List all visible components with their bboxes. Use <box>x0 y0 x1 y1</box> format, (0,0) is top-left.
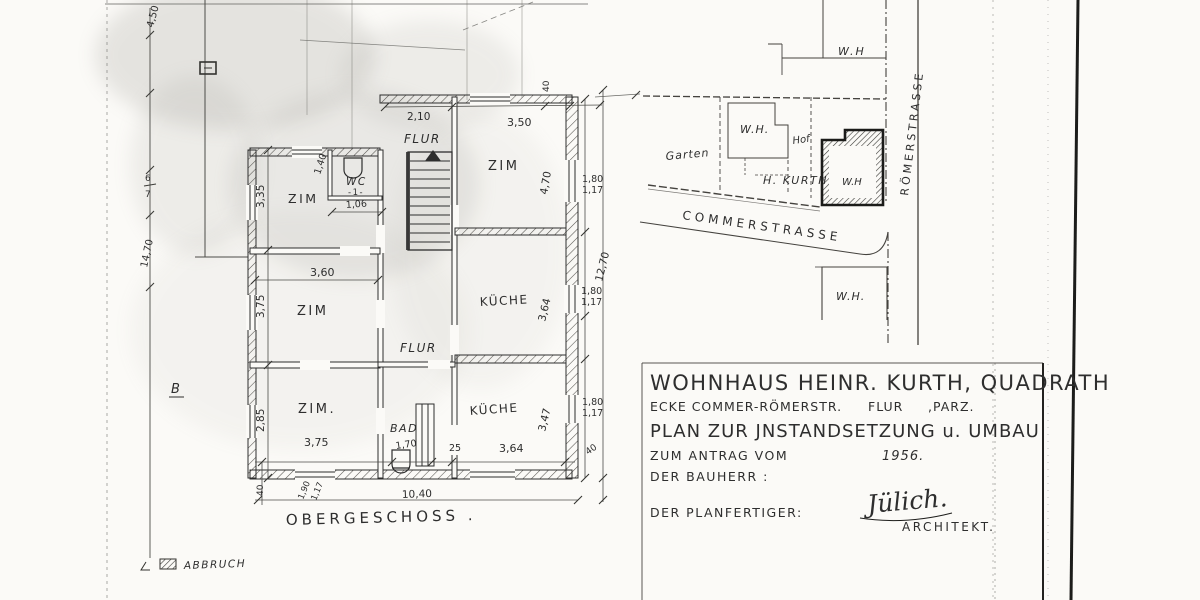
room-label-flur-top: FLUR <box>404 132 441 146</box>
street-label-commerstrasse: COMMERSTRASSE <box>682 208 843 244</box>
room-label-wc: WC <box>346 176 367 188</box>
title-line2a: ECKE COMMER-RÖMERSTR. <box>650 398 842 414</box>
margin-dim-6: 6 <box>145 174 151 184</box>
site-label-kurth: H. KURTH <box>763 174 828 187</box>
site-plan: W.H W.H. Hof Garten H. KURTH W.H W.H. RÖ… <box>640 0 926 345</box>
dim-kueche-se-h: 3,47 <box>536 407 553 433</box>
title-line2b: FLUR <box>868 399 903 414</box>
margin-dim-1470: 14,70 <box>139 238 156 268</box>
margin-dim-7: 7 <box>145 190 151 200</box>
dim-zim-w-w: 3,60 <box>310 266 335 279</box>
dim-right-total: 12,70 <box>593 251 612 283</box>
site-plan-labels: W.H W.H. Hof Garten H. KURTH W.H W.H. RÖ… <box>665 45 926 303</box>
site-label-wh-south: W.H. <box>836 290 865 303</box>
dim-zim-ne-w: 3,50 <box>507 116 532 129</box>
architect-signature: Jülich. <box>861 483 948 519</box>
title-line4a: ZUM ANTRAG VOM <box>650 448 788 463</box>
dim-flur-w: 2,10 <box>407 111 430 123</box>
site-label-garten: Garten <box>665 146 710 163</box>
commerstrasse-north-edge <box>648 185 820 207</box>
dim-zim-w-h: 3,75 <box>255 295 267 318</box>
architect-label: ARCHITEKT. <box>902 520 995 534</box>
dim-r1b: 1,17 <box>582 185 603 196</box>
room-label-zim-w: ZIM <box>297 304 328 319</box>
title-line1: WOHNHAUS HEINR. KURTH, QUADRATH <box>650 371 1110 395</box>
page-edge-line <box>1071 0 1078 600</box>
room-label-kueche-se: KÜCHE <box>469 399 519 418</box>
title-line4b: 1956. <box>882 449 924 464</box>
dim-se-40: 40 <box>584 443 599 458</box>
room-label-zim-nw: ZIM <box>288 191 319 206</box>
scan-noise-artifacts <box>95 0 570 450</box>
floor-plan-caption: OBERGESCHOSS . <box>286 506 477 529</box>
title-line2c: ,PARZ. <box>928 399 975 414</box>
legend: ABBRUCH <box>141 558 246 572</box>
room-label-wc-no: -1- <box>348 188 364 198</box>
room-label-bad: BAD <box>390 422 418 435</box>
legend-check-mark <box>141 562 150 570</box>
room-label-zim-sw: ZIM. <box>298 402 336 417</box>
dim-wc-w: 1,06 <box>345 199 367 211</box>
dim-zim-sw-w: 3,75 <box>304 436 329 449</box>
site-plan-lines <box>640 0 918 345</box>
dim-mid-25: 25 <box>449 443 461 454</box>
site-label-wh-left: W.H. <box>740 123 769 136</box>
dim-zim-nw-h: 3,35 <box>255 185 267 208</box>
room-label-zim-ne: ZIM <box>488 159 519 174</box>
legend-abbruch-label: ABBRUCH <box>183 558 247 572</box>
dim-kueche-se-w: 3,64 <box>499 442 524 455</box>
street-label-roemerstrasse: RÖMERSTRASSE <box>898 70 926 196</box>
title-block: WOHNHAUS HEINR. KURTH, QUADRATH ECKE COM… <box>642 363 1110 600</box>
title-line5: DER BAUHERR : <box>650 469 769 484</box>
legend-abbruch-swatch <box>160 559 176 569</box>
title-line6: DER PLANFERTIGER: <box>650 505 803 520</box>
site-label-wh-corner: W.H <box>842 177 862 188</box>
dim-r1a: 1,80 <box>582 174 603 185</box>
scanned-plan-sheet: 4,50 6 7 14,70 <box>0 0 1200 600</box>
dim-top-40: 40 <box>542 80 552 92</box>
dim-r2a: 1,80 <box>581 286 602 297</box>
plan-drawing: 4,50 6 7 14,70 <box>0 0 1200 600</box>
dim-bad-w: 1,70 <box>395 438 417 452</box>
dim-zim-sw-h: 2,85 <box>255 409 267 432</box>
shaft <box>416 404 434 466</box>
site-label-wh-top: W.H <box>838 45 866 58</box>
dim-r2b: 1,17 <box>581 297 602 308</box>
title-line3: PLAN ZUR JNSTANDSETZUNG u. UMBAU <box>650 421 1040 442</box>
room-label-flur-mid: FLUR <box>400 341 437 355</box>
site-label-hof: Hof <box>792 133 812 146</box>
section-label-b: B <box>171 382 180 397</box>
dim-r3b: 1,17 <box>582 408 603 419</box>
dim-sw-40: 40 <box>256 484 266 496</box>
dim-total-w: 10,40 <box>402 488 432 501</box>
dim-r3a: 1,80 <box>582 397 603 408</box>
